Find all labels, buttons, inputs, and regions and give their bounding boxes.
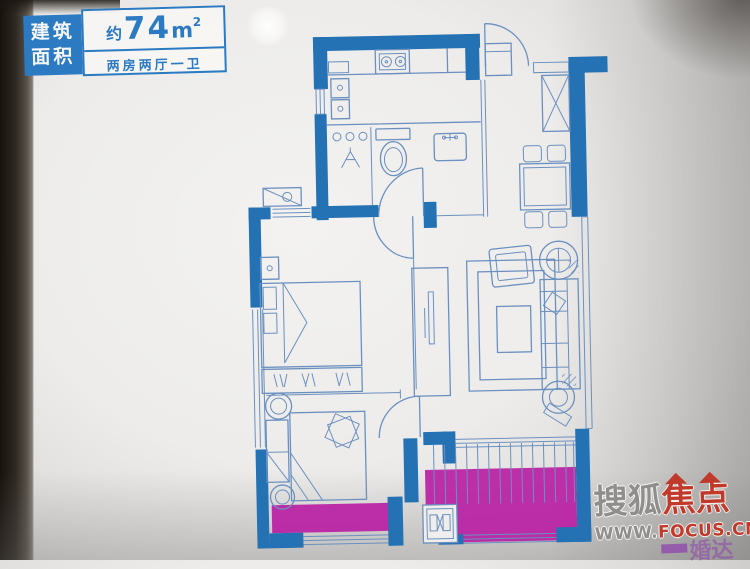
bedroom1-door — [374, 216, 414, 259]
area-label-title: 建筑 面积 — [23, 14, 83, 76]
bathroom-door — [378, 168, 424, 217]
house-roof-icon — [665, 473, 687, 485]
watermark-brand-gray: 搜狐 — [593, 480, 662, 522]
area-value-row: 约 74 m 2 — [83, 7, 224, 50]
watermark-brand-red: 焦点 — [661, 478, 730, 520]
washbasin-icon — [434, 133, 467, 161]
area-label-title-line2: 面积 — [24, 44, 83, 71]
second-bedroom — [265, 391, 366, 509]
layout-type-text: 两房两厅一卫 — [84, 46, 225, 74]
watermark-secondary-text: 婚达 — [689, 532, 734, 566]
bedroom1-side-window — [272, 208, 310, 217]
kitchen-counter-box — [328, 62, 348, 73]
toilet-icon — [376, 128, 411, 176]
shoe-cabinet-icon — [542, 75, 570, 132]
fridge-icon — [485, 43, 512, 76]
floor-plan — [232, 4, 618, 557]
dining-area — [518, 75, 572, 228]
floor-plan-svg — [232, 4, 618, 557]
single-bed-icon — [290, 411, 367, 501]
photo-corner-shadow — [630, 0, 750, 80]
area-exponent: 2 — [193, 15, 202, 29]
watermark-purple-box — [661, 544, 687, 554]
tv-cabinet-icon — [412, 268, 451, 397]
wall-hatch-bottom — [562, 374, 576, 386]
bathroom — [332, 80, 488, 220]
area-label-title-line1: 建筑 — [23, 19, 82, 46]
nightstand-icon — [260, 257, 278, 279]
washing-machine-icon — [423, 504, 458, 543]
desk-icon — [266, 420, 289, 482]
wardrobe-icon — [262, 367, 362, 393]
living-room — [411, 241, 582, 430]
living-room-window — [582, 217, 592, 429]
watermark-brand: 搜狐焦点 — [593, 477, 750, 523]
area-label: 建筑 面积 约 74 m 2 两房两厅一卫 — [23, 5, 229, 81]
stool-top-icon — [265, 393, 292, 420]
shower-icon — [333, 132, 368, 168]
dining-table-icon — [519, 145, 571, 228]
kitchen-window — [315, 89, 326, 114]
entry-door — [485, 22, 569, 74]
double-bed-icon — [260, 281, 362, 367]
watermark-url-prefix: WWW. — [594, 523, 658, 545]
area-value: 74 — [124, 13, 172, 44]
balcony-door-window — [455, 437, 575, 448]
approx-prefix: 约 — [106, 20, 123, 44]
ac-unit-icon — [263, 188, 301, 207]
bedroom2-door — [378, 396, 420, 438]
bay-window-lines — [303, 535, 388, 545]
kitchen-sink-cabinets — [331, 79, 350, 119]
wall-hatch-top — [569, 260, 579, 273]
watermark: 搜狐焦点 WWW.FOCUS.CN 婚达 — [593, 477, 750, 545]
house-roof-icon — [699, 471, 721, 483]
area-label-value-box: 约 74 m 2 两房两厅一卫 — [81, 5, 227, 76]
area-unit: m — [171, 18, 194, 43]
kitchen-stove-icon — [375, 49, 409, 74]
